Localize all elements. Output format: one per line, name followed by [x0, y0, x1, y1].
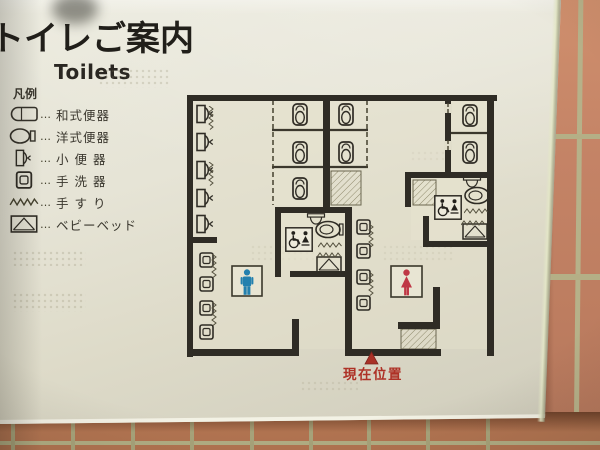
floor-plan-map — [183, 86, 505, 386]
legend-separator: … — [40, 174, 56, 187]
current-location-label: 現在位置 — [341, 363, 405, 383]
legend-item-label: 手 す り — [56, 193, 106, 212]
squat-toilet-icon — [8, 105, 40, 123]
western-toilet-icon — [8, 127, 40, 145]
urinal-icon — [8, 149, 40, 167]
legend-title: 凡例 — [13, 85, 37, 102]
legend-separator: … — [40, 108, 56, 121]
legend-item-1: …和式便器 — [8, 106, 178, 122]
accessible-toilet-sign-icon — [286, 228, 312, 251]
hand-basin-icon — [8, 171, 40, 189]
sign-panel: トイレご案内 Toilets 凡例 …和式便器…洋式便器…小 便 器…手 洗 器… — [0, 0, 600, 450]
legend-item-5: …手 す り — [8, 194, 178, 210]
braille-dots — [98, 68, 170, 88]
legend: …和式便器…洋式便器…小 便 器…手 洗 器…手 す り…ベビーベッド — [8, 106, 178, 232]
legend-item-label: 小 便 器 — [56, 149, 106, 168]
legend-item-label: 和式便器 — [56, 105, 110, 124]
legend-separator: … — [40, 152, 56, 165]
legend-item-label: 手 洗 器 — [56, 171, 106, 190]
legend-item-2: …洋式便器 — [8, 128, 178, 144]
braille-dots — [12, 292, 86, 312]
braille-dots — [12, 250, 86, 266]
tile-grout-line — [0, 441, 600, 445]
handrail-icon — [8, 193, 40, 211]
sign-title: トイレご案内 — [0, 22, 194, 58]
legend-item-3: …小 便 器 — [8, 150, 178, 166]
tile-grout-line — [574, 0, 584, 450]
legend-separator: … — [40, 218, 56, 231]
accessible-toilet-sign-icon — [435, 196, 461, 219]
legend-item-label: 洋式便器 — [56, 127, 110, 146]
baby-bed-icon — [8, 215, 40, 233]
legend-item-label: ベビーベッド — [56, 215, 137, 234]
legend-separator: … — [40, 196, 56, 209]
legend-item-4: …手 洗 器 — [8, 172, 178, 188]
legend-separator: … — [40, 130, 56, 143]
legend-item-6: …ベビーベッド — [8, 216, 178, 232]
